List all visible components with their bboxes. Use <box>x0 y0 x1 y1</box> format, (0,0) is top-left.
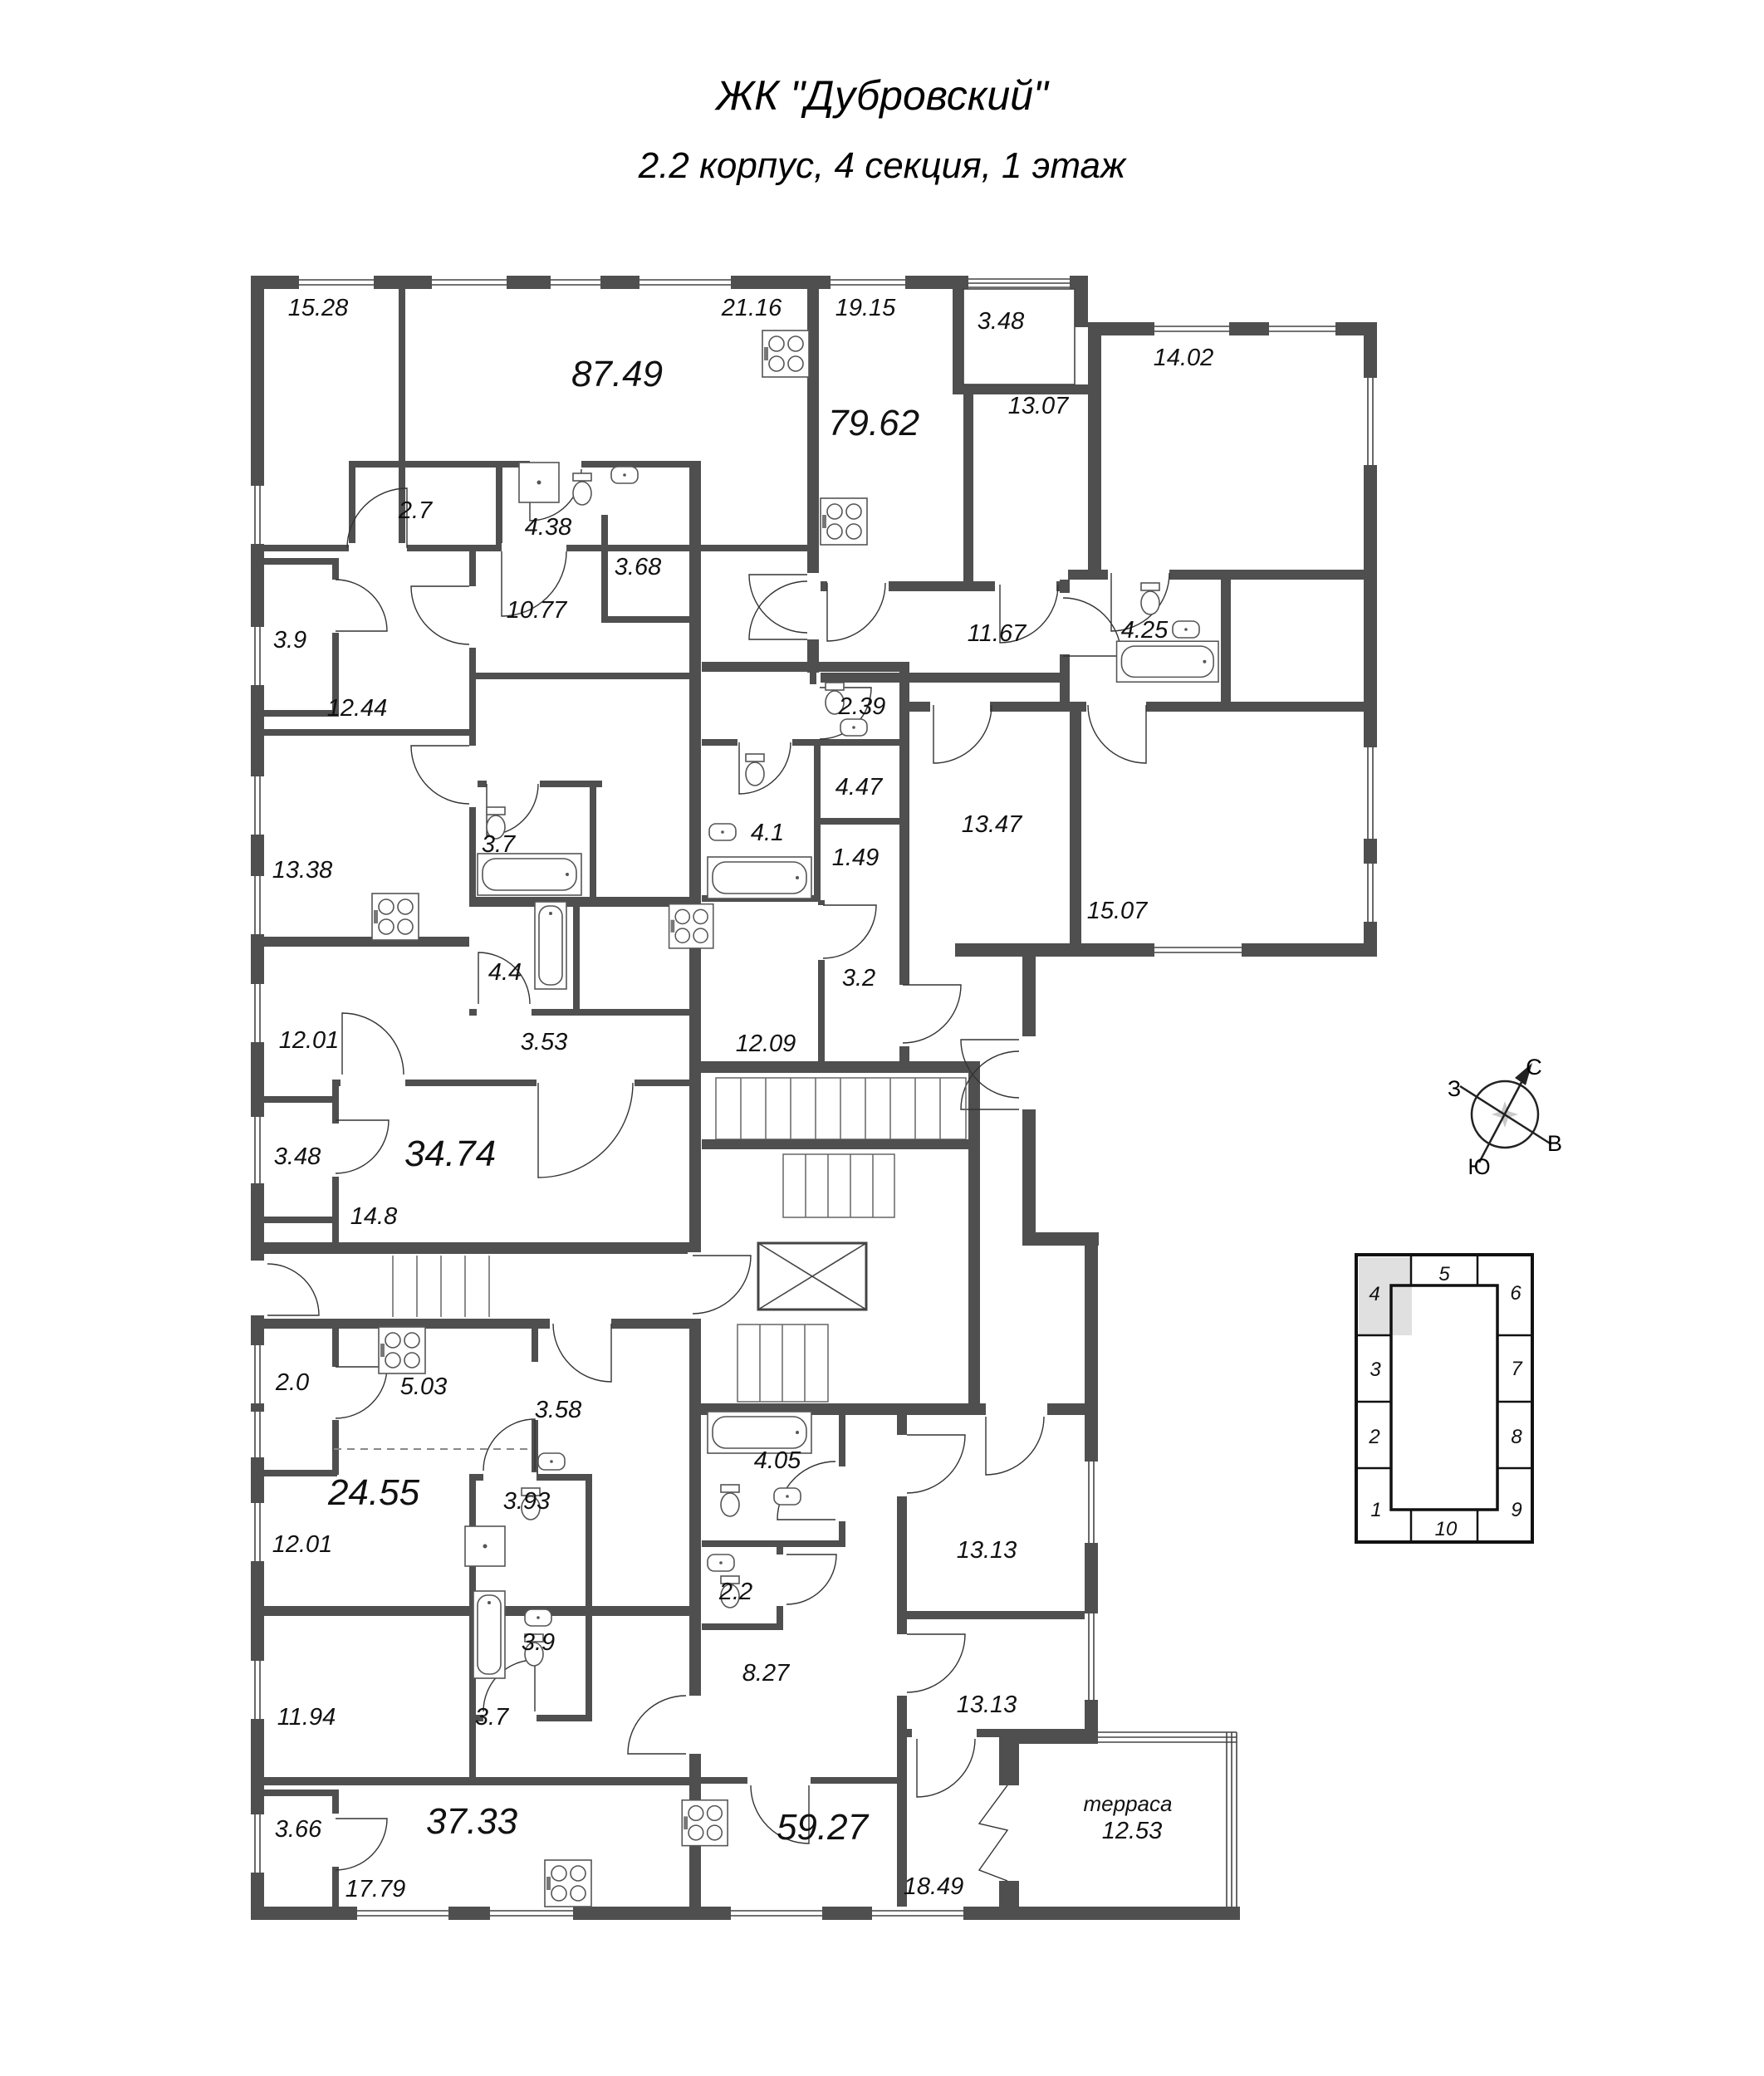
room-area-label: 4.25 <box>1121 617 1169 644</box>
room-area-label: 59.27 <box>777 1807 870 1848</box>
room-area-label: 2.0 <box>275 1369 309 1396</box>
room-area-label: 3.7 <box>475 1704 510 1731</box>
room-area-label: 8.27 <box>742 1660 791 1687</box>
room-area-label: 12.44 <box>327 695 388 722</box>
keyplan-section-number: 3 <box>1370 1359 1381 1381</box>
keyplan-section-number: 2 <box>1368 1426 1379 1448</box>
room-area-label: 3.48 <box>274 1143 321 1170</box>
room-area-label: терраса <box>1084 1791 1173 1816</box>
room-area-label: 14.8 <box>350 1203 397 1230</box>
room-area-label: 12.53 <box>1102 1818 1163 1844</box>
room-area-label: 3.2 <box>842 965 875 991</box>
keyplan-section-number: 1 <box>1370 1499 1381 1521</box>
room-area-label: 79.62 <box>828 403 919 443</box>
room-area-label: 37.33 <box>426 1801 518 1842</box>
compass-direction-label: В <box>1547 1131 1562 1156</box>
room-area-label: 2.39 <box>838 693 885 720</box>
keyplan-section-number: 5 <box>1438 1263 1450 1285</box>
room-area-label: 3.53 <box>521 1029 567 1055</box>
room-area-labels: 15.2821.1687.4919.153.4813.0714.0279.622… <box>272 295 1214 1902</box>
room-area-label: 3.9 <box>273 627 306 654</box>
keyplan-section-number: 9 <box>1511 1499 1521 1521</box>
room-area-label: 3.93 <box>503 1488 550 1515</box>
room-area-label: 13.47 <box>962 811 1023 838</box>
room-area-label: 21.16 <box>721 295 782 321</box>
keyplan-section-number: 4 <box>1369 1283 1379 1305</box>
terrace-door <box>979 1785 1007 1881</box>
keyplan-highlighted-section <box>1359 1257 1412 1335</box>
room-area-label: 19.15 <box>835 295 896 321</box>
room-area-label: 3.9 <box>522 1629 555 1656</box>
room-area-label: 3.68 <box>615 554 661 580</box>
room-area-label: 4.38 <box>525 514 571 541</box>
compass-direction-label: С <box>1526 1055 1542 1080</box>
room-area-label: 1.49 <box>832 845 879 871</box>
compass-rose: СЗВЮ <box>1448 1055 1562 1179</box>
room-area-label: 3.7 <box>482 831 517 858</box>
room-area-label: 12.09 <box>736 1031 796 1057</box>
keyplan-section-number: 10 <box>1435 1518 1458 1540</box>
room-area-label: 12.01 <box>272 1531 333 1558</box>
room-area-label: 13.07 <box>1008 393 1070 419</box>
elevator-shaft <box>758 1243 866 1310</box>
room-area-label: 4.47 <box>835 774 884 801</box>
room-area-label: 4.05 <box>754 1447 801 1474</box>
room-area-label: 17.79 <box>345 1876 406 1902</box>
room-area-label: 10.77 <box>507 597 568 624</box>
room-area-label: 12.01 <box>279 1027 340 1054</box>
room-area-label: 15.07 <box>1087 898 1149 924</box>
compass-direction-label: З <box>1448 1076 1461 1101</box>
room-area-label: 14.02 <box>1154 345 1214 371</box>
room-area-label: 15.28 <box>288 295 349 321</box>
room-area-label: 11.67 <box>968 620 1027 647</box>
page-title: ЖК "Дубровский" 2.2 корпус, 4 секция, 1 … <box>638 72 1127 186</box>
room-area-label: 3.58 <box>535 1397 581 1423</box>
room-area-label: 87.49 <box>571 354 663 394</box>
room-area-label: 5.03 <box>400 1373 447 1400</box>
room-area-label: 4.1 <box>751 820 784 846</box>
room-area-label: 3.66 <box>275 1816 322 1843</box>
room-area-label: 3.48 <box>978 308 1024 335</box>
title-line-1: ЖК "Дубровский" <box>713 72 1050 119</box>
room-area-label: 2.7 <box>398 497 434 524</box>
stairs <box>393 1078 980 1402</box>
keyplan-section-number: 8 <box>1511 1426 1522 1448</box>
room-area-label: 11.94 <box>277 1704 336 1731</box>
room-area-label: 18.49 <box>904 1873 964 1900</box>
compass-direction-label: Ю <box>1468 1154 1490 1179</box>
key-plan: 45637281910 <box>1356 1255 1532 1542</box>
keyplan-section-number: 6 <box>1510 1282 1521 1305</box>
keyplan-section-number: 7 <box>1511 1358 1523 1380</box>
room-area-label: 13.13 <box>957 1537 1017 1564</box>
room-area-label: 24.55 <box>327 1472 420 1513</box>
title-line-2: 2.2 корпус, 4 секция, 1 этаж <box>638 145 1127 186</box>
floor-plan-canvas: ЖК "Дубровский" 2.2 корпус, 4 секция, 1 … <box>0 0 1764 2076</box>
room-area-label: 13.38 <box>272 857 333 884</box>
room-area-label: 4.4 <box>488 959 522 986</box>
loggia-outline <box>963 289 1075 384</box>
room-area-label: 2.2 <box>718 1579 752 1605</box>
room-area-label: 34.74 <box>404 1133 496 1174</box>
room-area-label: 13.13 <box>957 1692 1017 1718</box>
